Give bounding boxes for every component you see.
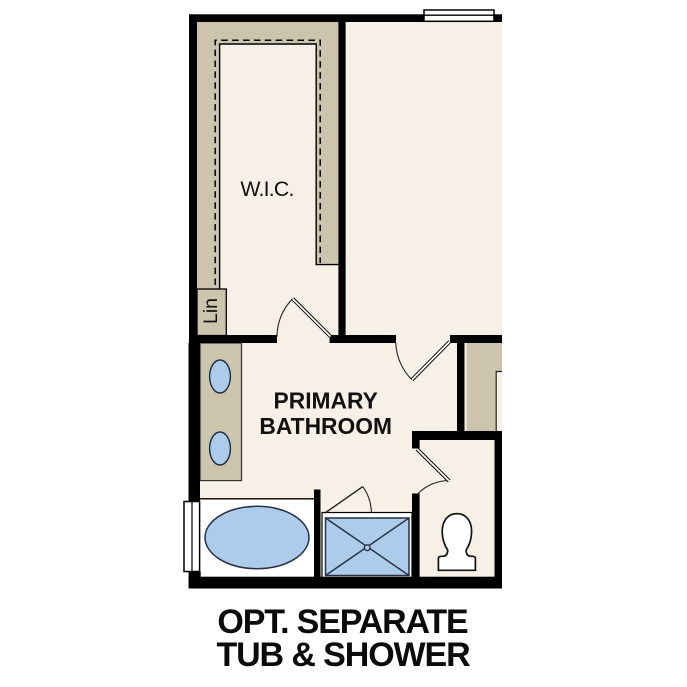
svg-text:PRIMARY: PRIMARY [274, 387, 378, 413]
svg-text:BATHROOM: BATHROOM [259, 413, 392, 439]
svg-text:TUB & SHOWER: TUB & SHOWER [216, 636, 470, 674]
svg-text:W.I.C.: W.I.C. [240, 177, 293, 201]
svg-text:Lin: Lin [200, 298, 222, 324]
